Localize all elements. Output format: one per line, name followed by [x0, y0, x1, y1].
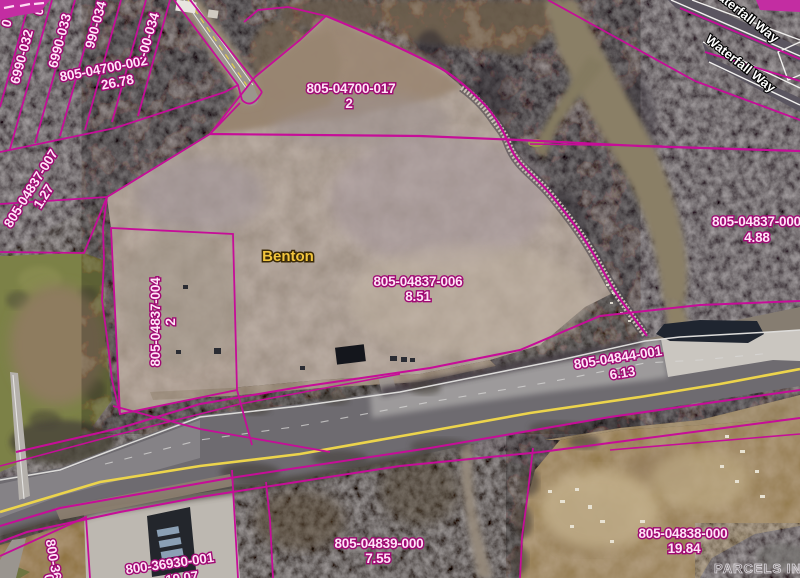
svg-text:805-04838-000: 805-04838-000: [639, 526, 728, 541]
svg-text:805-04839-000: 805-04839-000: [335, 536, 424, 551]
svg-text:PARCELS INC: PARCELS INC: [714, 561, 800, 576]
svg-text:7.55: 7.55: [365, 551, 391, 566]
svg-text:805-04837-004: 805-04837-004: [148, 277, 163, 367]
svg-text:4.88: 4.88: [744, 230, 770, 245]
svg-text:805-04700-017: 805-04700-017: [307, 81, 396, 96]
svg-text:805-04837-006: 805-04837-006: [374, 274, 464, 289]
svg-text:2: 2: [345, 96, 352, 111]
svg-text:2: 2: [163, 318, 178, 325]
svg-text:19.84: 19.84: [668, 541, 701, 556]
svg-text:Benton: Benton: [262, 248, 314, 265]
svg-text:8.51: 8.51: [405, 289, 431, 304]
svg-text:805-04837-000: 805-04837-000: [712, 214, 800, 229]
